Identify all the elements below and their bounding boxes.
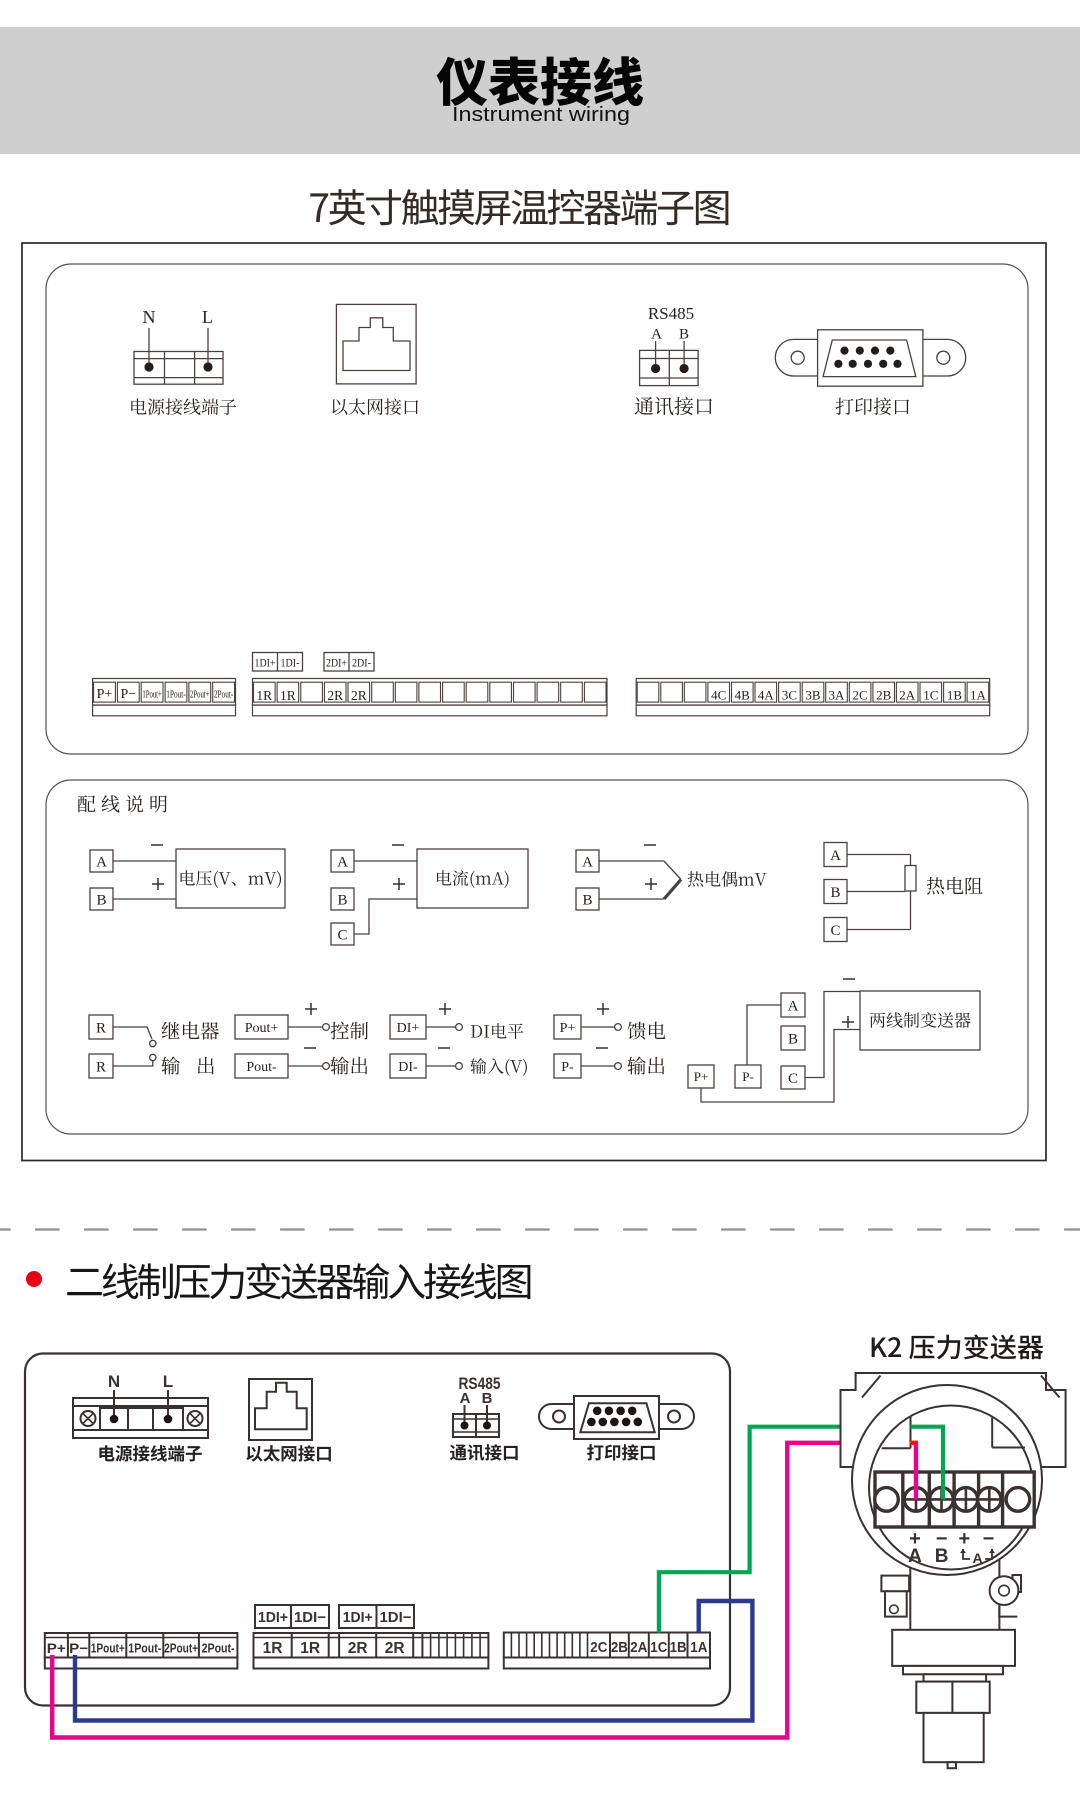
svg-text:1R: 1R xyxy=(280,688,296,703)
svg-text:2DI-: 2DI- xyxy=(352,658,371,670)
svg-text:B: B xyxy=(337,892,347,908)
svg-text:N: N xyxy=(108,1372,120,1391)
svg-text:2DI+: 2DI+ xyxy=(326,658,347,670)
svg-text:1DI-: 1DI- xyxy=(281,658,300,670)
svg-text:−: − xyxy=(983,1528,995,1550)
svg-text:2R: 2R xyxy=(385,1640,405,1657)
svg-text:RS485: RS485 xyxy=(648,304,694,323)
svg-text:A: A xyxy=(460,1390,471,1407)
svg-text:A: A xyxy=(830,848,841,864)
svg-text:2Pout-: 2Pout- xyxy=(214,690,234,701)
svg-text:Instrument wiring: Instrument wiring xyxy=(452,104,630,126)
svg-text:1R: 1R xyxy=(263,1640,283,1657)
svg-text:2C: 2C xyxy=(590,1640,607,1656)
svg-text:P+: P+ xyxy=(97,687,113,702)
svg-text:1DI−: 1DI− xyxy=(294,1610,326,1626)
svg-text:A: A xyxy=(651,327,662,343)
svg-text:1B: 1B xyxy=(947,688,963,703)
svg-text:A: A xyxy=(96,854,107,870)
svg-text:2Pout+: 2Pout+ xyxy=(164,1642,198,1656)
svg-text:1DI−: 1DI− xyxy=(380,1610,412,1626)
svg-text:3B: 3B xyxy=(805,688,821,703)
svg-text:P−: P− xyxy=(120,687,136,702)
svg-text:B: B xyxy=(482,1390,493,1407)
svg-text:DI+: DI+ xyxy=(397,1021,420,1036)
svg-text:1DI+: 1DI+ xyxy=(343,1610,373,1626)
svg-text:1C: 1C xyxy=(923,688,938,703)
svg-text:A: A xyxy=(788,998,799,1014)
svg-text:1Pout-: 1Pout- xyxy=(128,1642,161,1656)
svg-text:4B: 4B xyxy=(735,688,751,703)
svg-text:2Pout+: 2Pout+ xyxy=(190,690,210,701)
svg-text:C: C xyxy=(337,927,347,943)
svg-text:2A: 2A xyxy=(630,1640,647,1656)
svg-text:L: L xyxy=(163,1372,173,1391)
svg-text:B: B xyxy=(830,885,840,901)
svg-text:P+: P+ xyxy=(694,1069,709,1084)
svg-text:A: A xyxy=(908,1546,922,1567)
svg-text:1DI+: 1DI+ xyxy=(255,658,276,670)
svg-text:1A: 1A xyxy=(970,688,987,703)
svg-text:+: + xyxy=(959,1528,971,1550)
svg-text:3A: 3A xyxy=(829,688,846,703)
svg-text:1C: 1C xyxy=(650,1640,667,1656)
svg-text:A: A xyxy=(337,854,348,870)
svg-text:A: A xyxy=(582,854,593,870)
svg-text:DI-: DI- xyxy=(398,1060,418,1075)
svg-text:2B: 2B xyxy=(876,688,892,703)
svg-text:P-: P- xyxy=(742,1069,754,1084)
svg-text:1Pout+: 1Pout+ xyxy=(91,1642,125,1656)
svg-text:2C: 2C xyxy=(853,688,868,703)
svg-text:2B: 2B xyxy=(611,1640,628,1656)
svg-text:C: C xyxy=(830,923,840,939)
svg-text:R: R xyxy=(96,1059,106,1075)
svg-text:N: N xyxy=(143,307,156,327)
svg-text:2R: 2R xyxy=(348,1640,368,1657)
svg-text:Pout-: Pout- xyxy=(246,1060,277,1075)
svg-text:B: B xyxy=(582,892,592,908)
svg-text:2Pout-: 2Pout- xyxy=(202,1642,235,1656)
svg-text:A: A xyxy=(972,1550,982,1566)
svg-text:B: B xyxy=(788,1031,798,1047)
svg-text:B: B xyxy=(935,1546,949,1567)
svg-text:P+: P+ xyxy=(560,1021,576,1036)
svg-text:1Pout+: 1Pout+ xyxy=(142,690,162,701)
svg-text:B: B xyxy=(679,327,689,343)
svg-text:1A: 1A xyxy=(690,1640,707,1656)
svg-text:P-: P- xyxy=(561,1060,574,1075)
svg-text:1Pout-: 1Pout- xyxy=(166,690,186,701)
svg-text:2R: 2R xyxy=(351,688,367,703)
svg-text:1B: 1B xyxy=(670,1640,687,1656)
svg-text:1R: 1R xyxy=(256,688,272,703)
svg-text:B: B xyxy=(96,892,106,908)
svg-text:1DI+: 1DI+ xyxy=(258,1610,288,1626)
svg-text:C: C xyxy=(788,1071,798,1087)
svg-text:P−: P− xyxy=(69,1640,88,1656)
svg-text:P+: P+ xyxy=(47,1640,66,1656)
svg-text:2A: 2A xyxy=(899,688,916,703)
svg-text:2R: 2R xyxy=(327,688,343,703)
svg-text:4C: 4C xyxy=(711,688,726,703)
svg-text:1R: 1R xyxy=(300,1640,320,1657)
svg-text:R: R xyxy=(96,1020,106,1036)
svg-text:Pout+: Pout+ xyxy=(245,1021,279,1036)
svg-text:3C: 3C xyxy=(782,688,797,703)
svg-text:4A: 4A xyxy=(758,688,775,703)
svg-text:L: L xyxy=(202,307,213,327)
